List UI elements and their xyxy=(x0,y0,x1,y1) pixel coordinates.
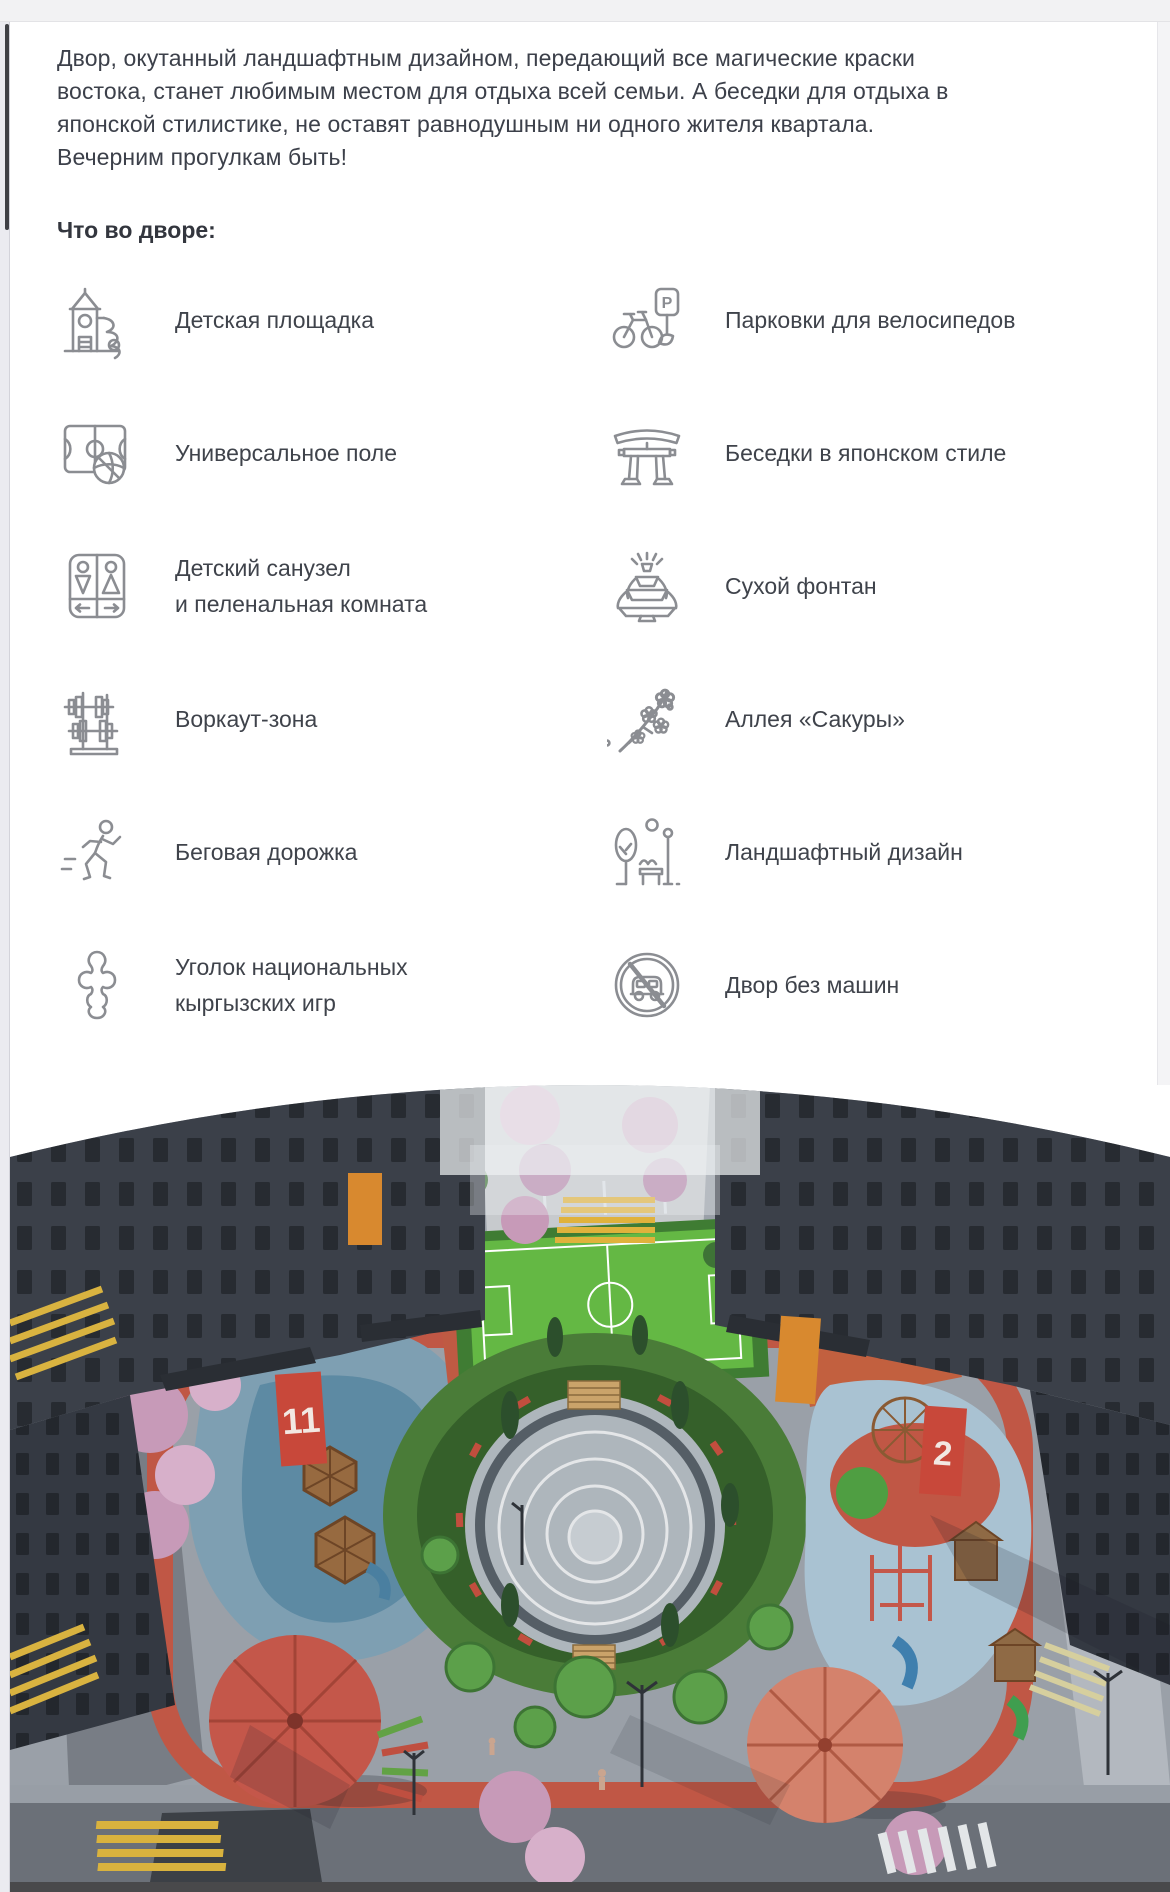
feature-landscape-design: Ландшафтный дизайн xyxy=(607,785,1170,918)
building-banner-right: 2 xyxy=(919,1406,967,1497)
sports-field-icon xyxy=(57,413,137,493)
feature-label: Сухой фонтан xyxy=(725,568,877,604)
top-bar xyxy=(0,0,1170,22)
feature-label: Аллея «Сакуры» xyxy=(725,701,905,737)
landscape-icon xyxy=(607,812,687,892)
feature-sports-field: Универсальное поле xyxy=(57,386,607,519)
workout-icon xyxy=(57,679,137,759)
content: Двор, окутанный ландшафтным дизайном, пе… xyxy=(10,22,1170,1892)
feature-sakura-alley: Аллея «Сакуры» xyxy=(607,652,1170,785)
feature-kids-wc: Детский санузел и пеленальная комната xyxy=(57,519,607,652)
feature-label: Двор без машин xyxy=(725,967,899,1003)
playground-icon xyxy=(57,280,137,360)
fountain-icon xyxy=(607,546,687,626)
feature-label: Воркаут-зона xyxy=(175,701,317,737)
next-section-edge xyxy=(10,1882,1170,1892)
building-number-left: 11 xyxy=(281,1399,322,1443)
page: Двор, окутанный ландшафтным дизайном, пе… xyxy=(0,0,1170,1892)
feature-playground: Детская площадка xyxy=(57,253,607,386)
bike-parking-icon: P xyxy=(607,280,687,360)
feature-label: Универсальное поле xyxy=(175,435,397,471)
feature-workout: Воркаут-зона xyxy=(57,652,607,785)
feature-label: Ландшафтный дизайн xyxy=(725,834,963,870)
intro-paragraph: Двор, окутанный ландшафтным дизайном, пе… xyxy=(57,42,1110,174)
kyrgyz-ornament-icon xyxy=(57,945,137,1025)
feature-label: Детский санузел и пеленальная комната xyxy=(175,550,427,622)
parking-letter: P xyxy=(662,295,673,312)
feature-bike-parking: P Парковки для велосипедов xyxy=(607,253,1170,386)
feature-kyrgyz-games: Уголок национальных кыргызских игр xyxy=(57,918,607,1051)
sakura-icon xyxy=(607,679,687,759)
features-grid: Детская площадка P Парковки для ве xyxy=(57,253,1170,1051)
courtyard-scene: 11 2 xyxy=(10,1085,1170,1882)
feature-label: Парковки для велосипедов xyxy=(725,302,1015,338)
building-number-right: 2 xyxy=(932,1434,954,1473)
left-gutter xyxy=(0,22,10,1892)
courtyard-render: 11 2 xyxy=(10,1085,1170,1882)
feature-dry-fountain: Сухой фонтан xyxy=(607,519,1170,652)
section-heading: Что во дворе: xyxy=(57,214,1170,247)
feature-no-cars: Двор без машин xyxy=(607,918,1170,1051)
feature-running-track: Беговая дорожка xyxy=(57,785,607,918)
feature-label: Беседки в японском стиле xyxy=(725,435,1006,471)
kids-wc-icon xyxy=(57,546,137,626)
feature-label: Беговая дорожка xyxy=(175,834,357,870)
building-banner-left: 11 xyxy=(275,1372,327,1467)
feature-label: Уголок национальных кыргызских игр xyxy=(175,949,408,1021)
feature-japanese-gazebo: Беседки в японском стиле xyxy=(607,386,1170,519)
no-cars-icon xyxy=(607,945,687,1025)
runner-icon xyxy=(57,812,137,892)
scrollbar-thumb[interactable] xyxy=(5,24,9,230)
feature-label: Детская площадка xyxy=(175,302,374,338)
torii-gate-icon xyxy=(607,413,687,493)
